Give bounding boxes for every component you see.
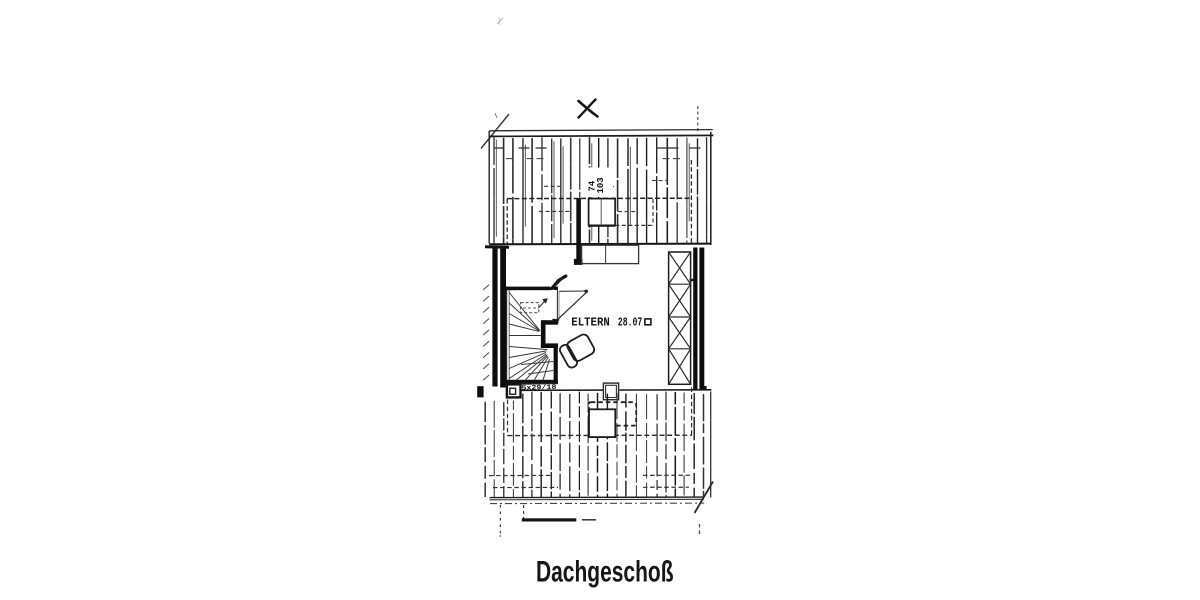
svg-text:Dachgeschoß: Dachgeschoß: [536, 556, 674, 589]
svg-text:5x29/18: 5x29/18: [521, 384, 556, 393]
svg-text:103: 103: [596, 177, 606, 193]
svg-text:28.07: 28.07: [618, 316, 643, 329]
svg-text:ELTERN: ELTERN: [571, 316, 610, 329]
